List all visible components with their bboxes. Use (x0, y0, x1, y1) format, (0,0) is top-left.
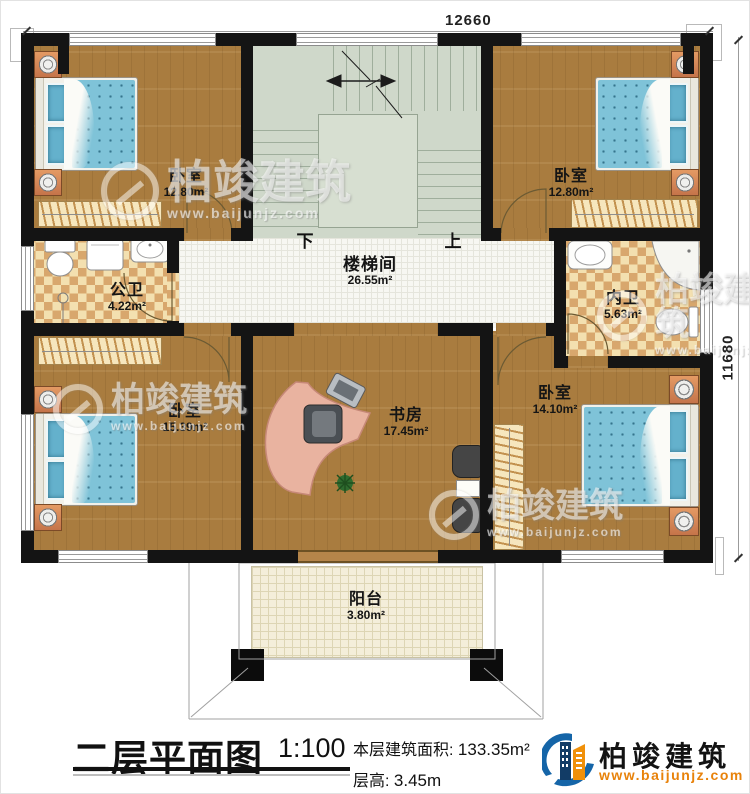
floor-height-label: 层高: (353, 773, 389, 790)
window (296, 33, 438, 46)
wall-segment (480, 336, 493, 563)
floor-area-value: 133.35m² (458, 740, 530, 759)
wall-segment (21, 228, 184, 241)
ensuite-bath-fixtures (568, 241, 699, 337)
stair-up-label: 上 (445, 227, 462, 252)
wall-segment (554, 356, 568, 368)
wall-segment (608, 356, 700, 368)
window (58, 550, 148, 563)
wall-segment (231, 228, 253, 241)
desk-group (265, 372, 370, 495)
dimension-line-right (738, 37, 739, 561)
dimension-line-top (23, 31, 713, 32)
stair-down-label: 下 (297, 227, 314, 252)
wall-segment (241, 336, 253, 563)
floor-drain-icon (58, 293, 68, 303)
floor-area-note: 本层建筑面积: 133.35m² (353, 736, 530, 760)
plan-linework (1, 1, 750, 794)
window (700, 289, 713, 353)
wall-segment (216, 33, 296, 46)
wall-segment (21, 323, 184, 336)
wall-segment (438, 323, 493, 336)
room-label-study: 书房17.45m² (384, 407, 429, 438)
room-label-public-bath: 公卫4.22m² (108, 282, 146, 313)
title-underline (73, 767, 350, 771)
room-label-bedroom-bl: 卧室15.39m² (163, 403, 208, 434)
door-arc (501, 189, 546, 233)
door-arc (498, 337, 546, 385)
wall-segment (549, 228, 700, 241)
wall-segment (438, 550, 561, 563)
window (21, 414, 34, 531)
door-arc (184, 337, 229, 382)
wall-segment (554, 238, 566, 358)
window (69, 33, 216, 46)
drawing-scale: 1:100 (278, 733, 346, 764)
wall-segment (231, 323, 294, 336)
wall-segment (241, 33, 253, 241)
toilet-icon (47, 252, 73, 276)
stair-arrow (327, 51, 402, 118)
wall-pier (58, 46, 69, 74)
floor-plan-sheet: 卧室12.80m² 卧室12.80m² 公卫4.22m² 楼梯间26.55m² … (0, 0, 750, 794)
window (521, 33, 681, 46)
balcony-door (298, 550, 438, 563)
washing-machine-icon (87, 239, 123, 270)
wall-segment (148, 550, 298, 563)
corner-shower-icon (652, 241, 699, 290)
floor-height-note: 层高: 3.45m (353, 767, 441, 791)
porch-outline (189, 563, 543, 719)
window (561, 550, 664, 563)
title-underline-shadow (73, 774, 350, 776)
room-label-ensuite-bath: 内卫5.63m² (604, 290, 642, 321)
floor-height-value: 3.45m (394, 771, 441, 790)
room-label-bedroom-tl: 卧室12.80m² (164, 168, 209, 199)
window (21, 246, 34, 311)
wall-segment (21, 550, 58, 563)
wall-segment (481, 228, 501, 241)
room-label-bedroom-tr: 卧室12.80m² (549, 168, 594, 199)
door-arc (568, 314, 608, 354)
wall-segment (21, 33, 34, 246)
wall-segment (700, 33, 713, 289)
wall-pier (683, 46, 694, 74)
room-label-balcony: 阳台3.80m² (347, 591, 385, 622)
wall-segment (700, 353, 713, 563)
wall-segment (438, 33, 521, 46)
room-label-stair-hall: 楼梯间26.55m² (343, 255, 397, 287)
floor-area-label: 本层建筑面积: (353, 742, 453, 759)
brand-website: www.baijunjz.com (599, 767, 744, 783)
room-label-bedroom-br: 卧室14.10m² (533, 385, 578, 416)
wall-segment (664, 550, 713, 563)
wall-segment (167, 241, 179, 273)
dimension-top: 12660 (445, 12, 492, 29)
toilet-icon (656, 309, 688, 335)
wall-segment (481, 33, 493, 241)
dimension-right: 11680 (720, 333, 737, 383)
brand-logo-icon (542, 730, 596, 788)
